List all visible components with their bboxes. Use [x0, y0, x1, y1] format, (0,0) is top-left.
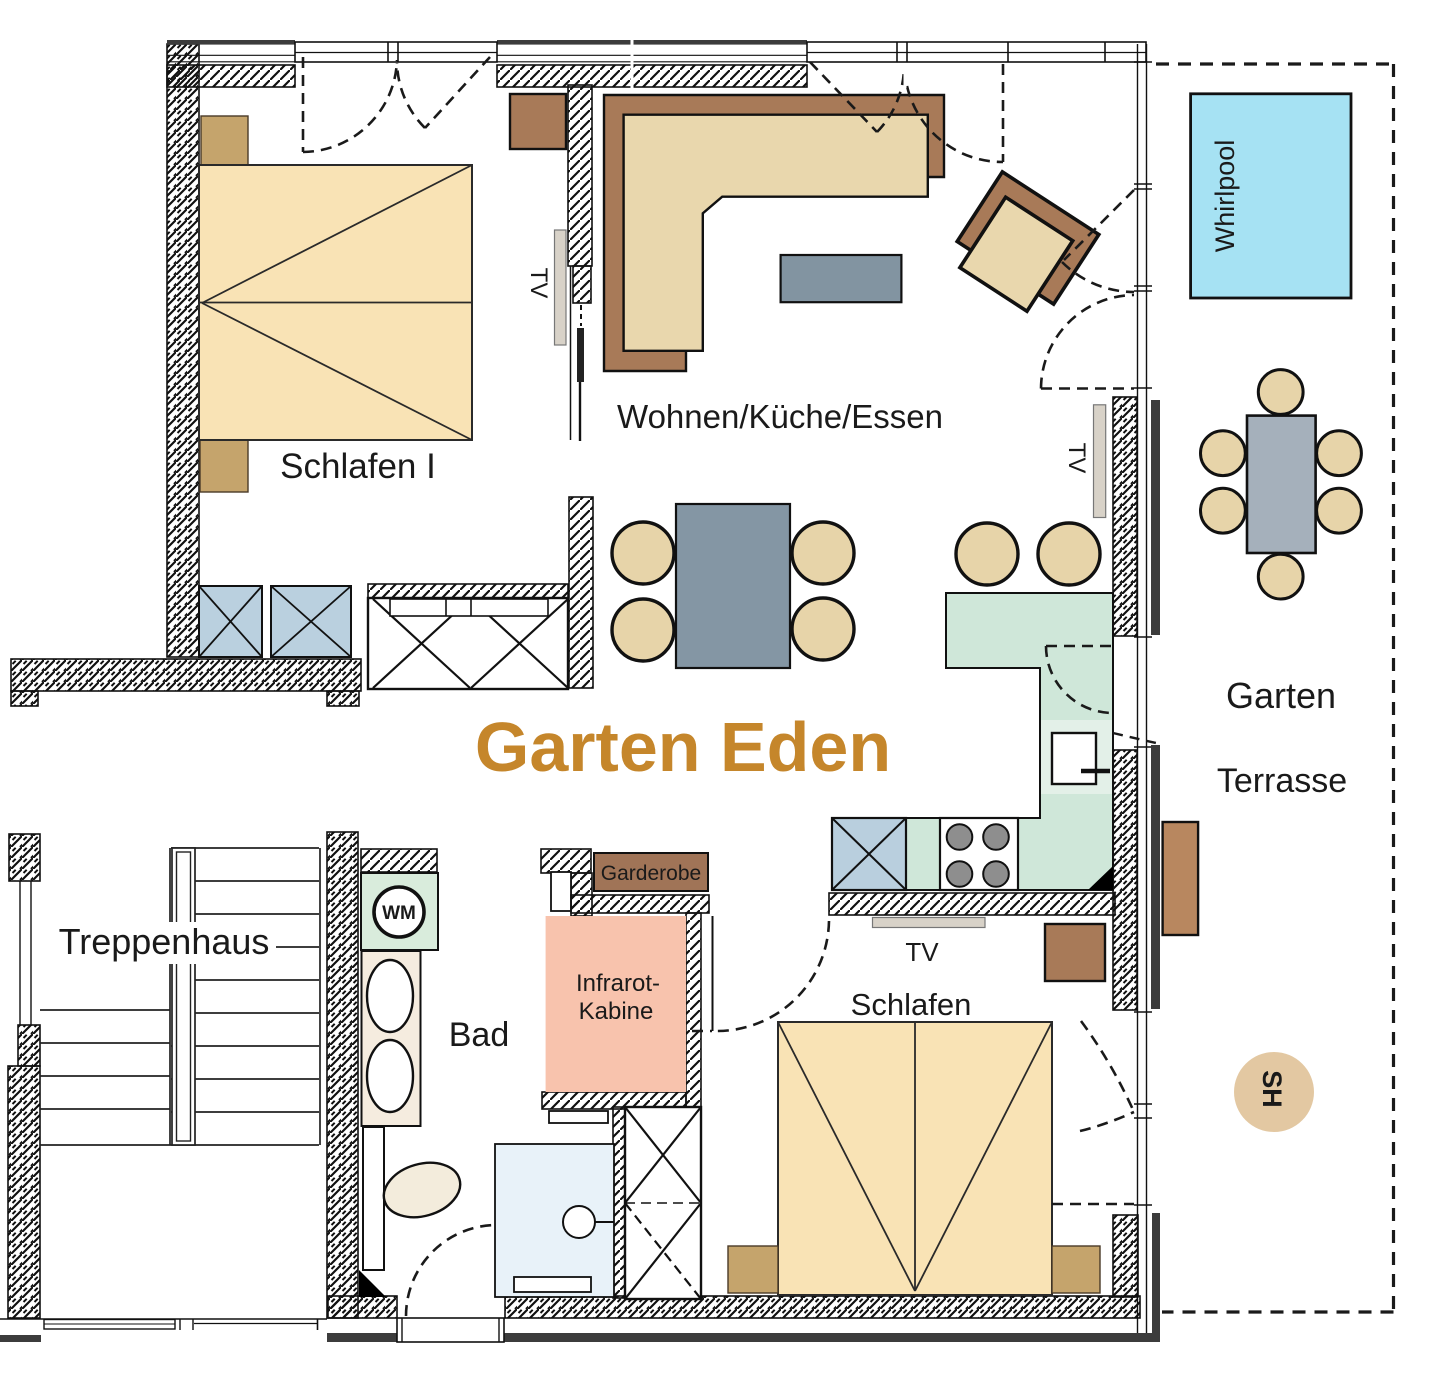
svg-text:Whirlpool: Whirlpool [1210, 140, 1240, 253]
svg-text:Infrarot-: Infrarot- [576, 970, 660, 997]
svg-text:Garderobe: Garderobe [601, 862, 701, 885]
svg-text:Bad: Bad [449, 1016, 510, 1054]
svg-text:Garten: Garten [1226, 675, 1336, 716]
svg-text:Kabine: Kabine [579, 998, 654, 1025]
svg-text:Treppenhaus: Treppenhaus [59, 921, 270, 962]
svg-text:Terrasse: Terrasse [1217, 762, 1347, 800]
svg-text:TV: TV [1063, 443, 1090, 474]
svg-text:TV: TV [905, 937, 939, 967]
svg-text:Schlafen: Schlafen [851, 987, 972, 1022]
svg-text:WM: WM [382, 903, 416, 924]
svg-text:SH: SH [1257, 1070, 1287, 1108]
svg-text:TV: TV [525, 268, 552, 299]
svg-text:Wohnen/Küche/Essen: Wohnen/Küche/Essen [617, 398, 943, 435]
svg-text:Schlafen I: Schlafen I [280, 447, 436, 486]
svg-text:Garten Eden: Garten Eden [475, 708, 891, 786]
